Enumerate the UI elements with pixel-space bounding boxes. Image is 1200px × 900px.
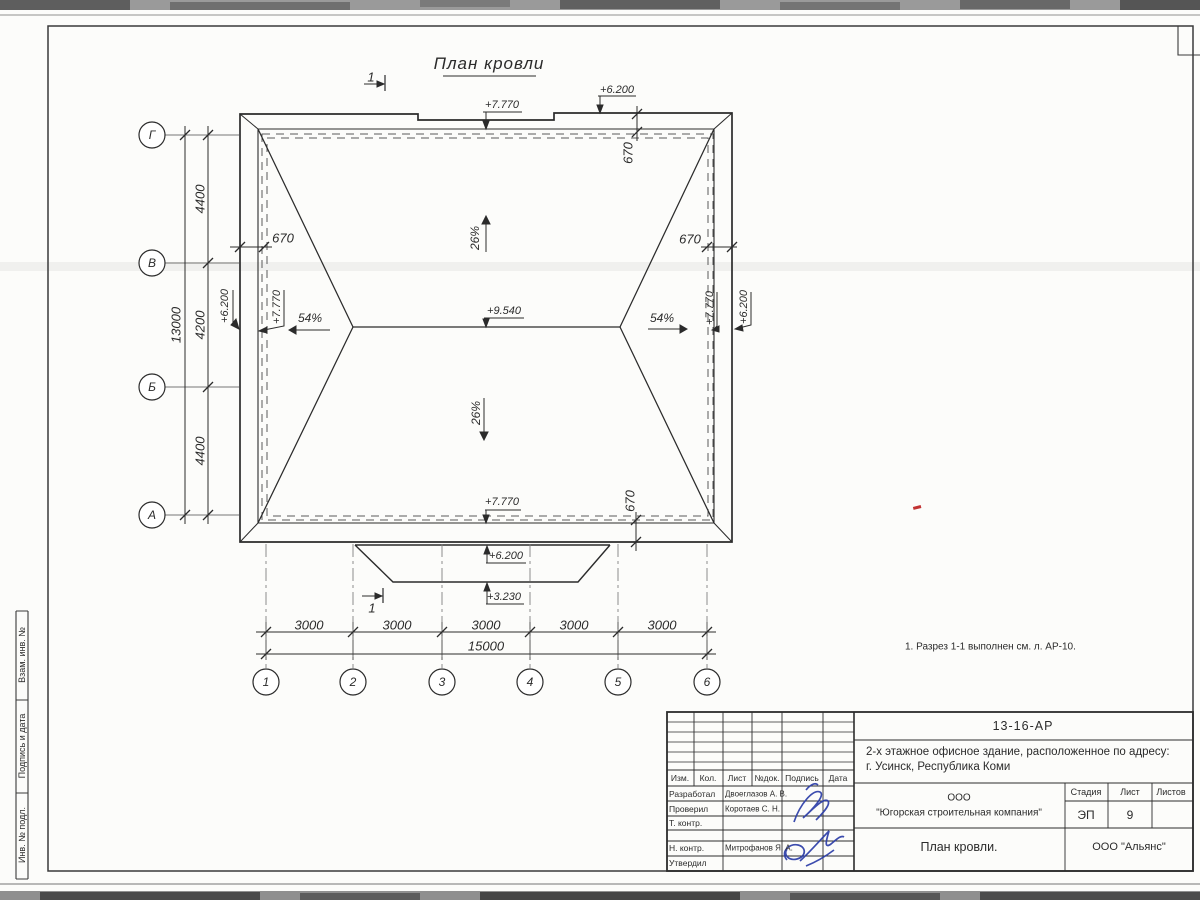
col-header-izm: Изм. bbox=[671, 773, 689, 783]
elevation-label-eave-top: +7.770 bbox=[485, 99, 519, 111]
sheet-label: Лист bbox=[1120, 787, 1140, 797]
dim-4400-bottom: 4400 bbox=[193, 437, 208, 466]
axis-bubble-1: 1 bbox=[263, 675, 270, 689]
dim-15000: 15000 bbox=[468, 639, 504, 654]
left-axis-grid bbox=[139, 122, 240, 528]
col-header-date: Дата bbox=[829, 773, 848, 783]
contractor-name: ООО "Альянс" bbox=[1092, 841, 1166, 853]
axis-bubble-g: Г bbox=[149, 128, 156, 142]
sheet-value: 9 bbox=[1127, 808, 1134, 822]
dim-13000: 13000 bbox=[169, 307, 184, 343]
col-header-sign: Подпись bbox=[785, 773, 819, 783]
elevation-label-parapet-top: +6.200 bbox=[600, 84, 634, 96]
entrance-canopy-outline bbox=[355, 545, 610, 582]
elevation-label-canopy-top: +6.200 bbox=[489, 550, 523, 562]
axis-bubble-a: А bbox=[148, 508, 156, 522]
elevation-label-eave-right: +7.770 bbox=[704, 291, 716, 325]
overhang-dim-left: 670 bbox=[272, 231, 294, 246]
slope-label-26-bottom: 26% bbox=[469, 401, 483, 425]
project-description-line2: г. Усинск, Республика Коми bbox=[866, 761, 1010, 773]
scan-noise-bottom bbox=[0, 891, 1200, 900]
section-mark-label-bottom: 1 bbox=[368, 601, 375, 616]
slope-label-26-top: 26% bbox=[468, 226, 482, 250]
slope-arrows bbox=[289, 216, 687, 440]
drawing-title: План кровли bbox=[434, 54, 545, 74]
elevation-leaders bbox=[231, 96, 751, 604]
slope-label-54-left: 54% bbox=[298, 311, 322, 325]
overhang-dim-top-right: 670 bbox=[621, 142, 636, 164]
dim-3000-1: 3000 bbox=[295, 618, 324, 633]
dim-3000-4: 3000 bbox=[560, 618, 589, 633]
org-name-line2: "Югорская строительная компания" bbox=[876, 808, 1042, 819]
axis-bubble-2: 2 bbox=[350, 675, 357, 689]
row-developed: Разработал bbox=[669, 789, 715, 799]
axis-bubble-b: Б bbox=[148, 380, 156, 394]
roof-plan-linework bbox=[0, 0, 1200, 900]
dim-3000-5: 3000 bbox=[648, 618, 677, 633]
doc-number: 13-16-АР bbox=[993, 719, 1054, 733]
col-header-doc: №док. bbox=[755, 773, 780, 783]
elevation-label-parapet-right: +6.200 bbox=[738, 290, 750, 324]
dim-4400-top: 4400 bbox=[193, 185, 208, 214]
axis-bubble-v: В bbox=[148, 256, 156, 270]
dim-4200: 4200 bbox=[193, 311, 208, 340]
axis-bubble-6: 6 bbox=[704, 675, 711, 689]
note-text: 1. Разрез 1-1 выполнен см. л. АР-10. bbox=[905, 642, 1076, 653]
col-header-kol: Кол. bbox=[700, 773, 717, 783]
red-ink-speck bbox=[913, 505, 921, 510]
scan-noise-top bbox=[0, 0, 1200, 10]
row-tcontrol: Т. контр. bbox=[669, 818, 702, 828]
sheets-label: Листов bbox=[1156, 787, 1185, 797]
slope-label-54-right: 54% bbox=[650, 311, 674, 325]
name-checked: Коротаев С. Н. bbox=[725, 805, 780, 814]
elevation-label-canopy-low: +3.230 bbox=[487, 591, 521, 603]
elevation-label-ridge: +9.540 bbox=[487, 305, 521, 317]
scanned-drawing-sheet: План кровли 1. Разрез 1-1 выполнен см. л… bbox=[0, 0, 1200, 900]
elevation-label-parapet-left: +6.200 bbox=[219, 289, 231, 323]
section-mark-label-top: 1 bbox=[367, 70, 374, 85]
axis-bubble-3: 3 bbox=[439, 675, 446, 689]
row-checked: Проверил bbox=[669, 804, 708, 814]
frame-strip-podpis: Подпись и дата bbox=[17, 714, 27, 779]
frame-strip-vzam: Взам. инв. № bbox=[17, 627, 27, 683]
name-developed: Двоеглазов А. В. bbox=[725, 790, 787, 799]
elevation-label-eave-bottom: +7.770 bbox=[485, 496, 519, 508]
elevation-label-eave-left: +7.770 bbox=[271, 290, 283, 324]
org-name-line1: ООО bbox=[947, 793, 970, 804]
stage-value: ЭП bbox=[1077, 808, 1094, 822]
axis-bubble-5: 5 bbox=[615, 675, 622, 689]
stage-label: Стадия bbox=[1071, 787, 1102, 797]
frame-corner-box bbox=[1178, 26, 1200, 55]
row-ncontrol: Н. контр. bbox=[669, 843, 704, 853]
signature-strokes bbox=[785, 784, 845, 866]
frame-strip-inv: Инв. № подл. bbox=[17, 807, 27, 863]
dim-3000-3: 3000 bbox=[472, 618, 501, 633]
overhang-dim-right: 670 bbox=[679, 232, 701, 247]
axis-bubble-4: 4 bbox=[527, 675, 534, 689]
name-ncontrol: Митрофанов Я. А. bbox=[725, 844, 793, 853]
col-header-list: Лист bbox=[728, 773, 746, 783]
sheet-title: План кровли. bbox=[920, 840, 997, 854]
overhang-dim-bottom-right: 670 bbox=[623, 490, 638, 512]
row-approved: Утвердил bbox=[669, 858, 707, 868]
section-marks bbox=[362, 75, 385, 603]
project-description-line1: 2-х этажное офисное здание, расположенно… bbox=[866, 746, 1170, 758]
dim-3000-2: 3000 bbox=[383, 618, 412, 633]
